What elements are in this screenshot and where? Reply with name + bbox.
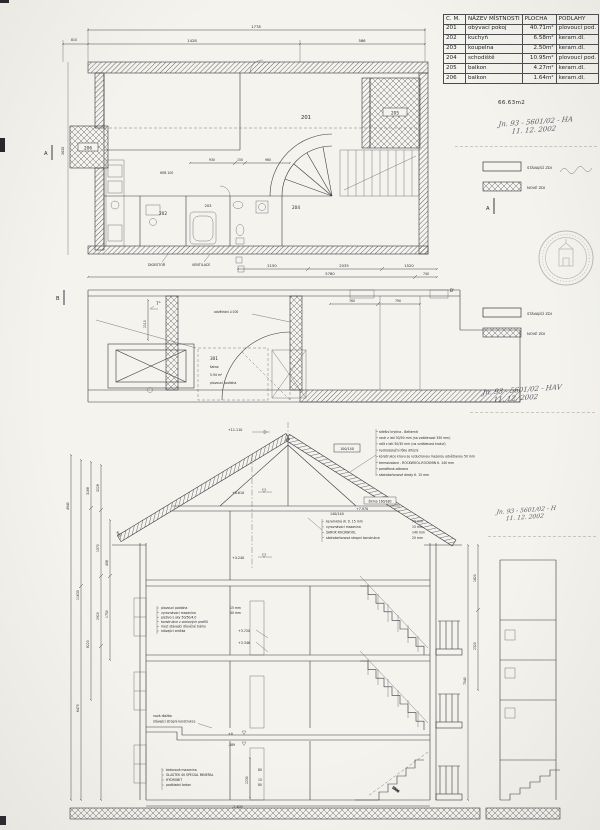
- skylight: [108, 344, 194, 393]
- elev-label: +8.610: [232, 491, 244, 495]
- room-area: 2.50m²: [522, 44, 556, 54]
- table-row: 206 balkon 1.64m² keram.dl.: [444, 74, 599, 84]
- scan-artifact-line: [470, 412, 595, 413]
- dim-label: 458: [105, 560, 109, 566]
- legend-existing-label: STÁVAJÍCÍ ZDI: [527, 165, 552, 170]
- floor-note: stávající omítka: [161, 629, 185, 633]
- dim-label: 1778: [251, 25, 261, 29]
- bathroom-fixtures: [190, 201, 268, 244]
- base-note: GLASTEK 40 SPECIAL MINERAL: [166, 773, 214, 777]
- ground-hatch-right: [486, 808, 560, 819]
- slab-note: nová dlažba: [153, 714, 172, 718]
- roof-note: střešní krytina - Betternit: [379, 430, 419, 434]
- dim-label: 2320: [473, 642, 477, 650]
- dim-label: 2150: [267, 264, 277, 268]
- floor-val: 40 mm: [230, 611, 241, 615]
- legend-new-label: NOVÉ ZDI: [527, 331, 545, 336]
- base-dim: 2230: [245, 776, 249, 784]
- dim-label: 2920: [96, 612, 100, 620]
- base-val: 15: [258, 778, 262, 782]
- section-balconies: [436, 621, 462, 800]
- room-no: 202: [444, 34, 466, 44]
- scan-edge-blob: [0, 816, 6, 825]
- room-name: obývací pokoj: [466, 24, 523, 34]
- room-area: 6.58m²: [522, 34, 556, 44]
- dim-label: 960: [265, 158, 271, 162]
- right-tower: [500, 560, 560, 800]
- mid-notes: keramická dl. tl. 15 mm vyrovnávací maza…: [308, 518, 425, 542]
- room-no: 204: [444, 54, 466, 64]
- legend-existing-label: STÁVAJÍCÍ ZDI: [527, 311, 552, 316]
- mid-val: 140 mm: [412, 531, 425, 535]
- plan1-partitions: [104, 60, 282, 246]
- room-area: 5.94 m²: [210, 373, 223, 377]
- dims-left: 4940 11635 6470 3168 8220 3228 1570 2920…: [66, 455, 112, 800]
- scanned-architectural-drawing: 1778 1428 586 810 1620 206: [0, 0, 600, 830]
- balcony-206: 206: [70, 126, 108, 168]
- floor-plan-upper: 1778 1428 586 810 1620 206: [44, 25, 494, 279]
- roof-right-slope: [286, 434, 456, 545]
- marker-letter: A: [486, 206, 490, 212]
- room-name: koupelna: [466, 44, 523, 54]
- building-section: +11.110 střešní krytina - Betternit rast…: [66, 422, 560, 819]
- room-floor: plovoucí pod.: [556, 24, 599, 34]
- table-row: 203 koupelna 2.50m² keram.dl.: [444, 44, 599, 54]
- room-no: 203: [444, 44, 466, 54]
- roof-note: hydroizolační fólie difúzní: [379, 448, 419, 452]
- dim-label: 1620: [61, 147, 65, 155]
- table-row: 205 balkon 4.27m² keram.dl.: [444, 64, 599, 74]
- room-area: 40.71m²: [522, 24, 556, 34]
- room-area: 10.95m²: [522, 54, 556, 64]
- room-number-203: 203: [204, 204, 212, 208]
- plan2-right-area: [350, 290, 448, 390]
- elev-beam: +7.970: [356, 507, 368, 511]
- floor-plan-attic: 7° 301 šatna 5.94 m² plovoucí podlaha: [56, 288, 520, 402]
- mid-val: 15 mm: [412, 525, 423, 529]
- ground-hatch: [70, 808, 480, 819]
- dim-label: 4940: [66, 502, 70, 510]
- stair-flight-middle: [360, 651, 428, 730]
- base-val: 80: [258, 768, 262, 772]
- room-no: 201: [444, 24, 466, 34]
- roof-note: parotěsná zábrana: [379, 467, 408, 471]
- slope-label: 7°: [156, 301, 161, 306]
- legend-upper: STÁVAJÍCÍ ZDI NOVÉ ZDI: [483, 162, 592, 191]
- room-number: 205: [391, 111, 399, 116]
- room-name: balkon: [466, 74, 523, 84]
- roof-left-slope: [117, 434, 289, 542]
- dim-label: 5780: [325, 272, 335, 276]
- digestor-label: DIGESTOŘ: [148, 262, 166, 267]
- stair-flight-basement: 2500: [355, 752, 428, 800]
- plan1-dimensions-inner: 930 150 960: [190, 158, 290, 165]
- vent-leader: [252, 314, 290, 322]
- plan1-dimensions-bottom: 2150 2035 1520 5780 740: [88, 264, 437, 279]
- skew-label: šikmo 160/180: [368, 500, 391, 504]
- dim-label: 1750: [105, 610, 109, 618]
- room-floor: plovoucí pod.: [556, 54, 599, 64]
- legend-lower: STÁVAJÍCÍ ZDI NOVÉ ZDI: [483, 308, 552, 337]
- floor-note: konstrukce z ocelových profilů: [161, 620, 208, 624]
- total-area: 66.63m2: [498, 100, 525, 106]
- legend-new-label: NOVÉ ZDI: [527, 185, 545, 190]
- vent-label: odvětrání ∅100: [214, 310, 238, 314]
- dim-label: 150: [237, 158, 243, 162]
- floor-note: vyrovnávací mazanina: [161, 611, 196, 615]
- table-row: 201 obývací pokoj 40.71m² plovoucí pod.: [444, 24, 599, 34]
- room-number-202: 202: [159, 211, 167, 216]
- plan2-wall-column-2: [290, 296, 302, 390]
- room-number-201: 201: [301, 115, 311, 121]
- room-name: balkon: [466, 64, 523, 74]
- elev-label: +4.240: [232, 556, 244, 560]
- room-name: šatna: [210, 365, 219, 369]
- mid-note: ŠAROX ROCKWOOL: [326, 530, 356, 535]
- mid-val: 70 mm: [412, 520, 423, 524]
- elev-label: +3.720: [238, 629, 250, 633]
- dim-label: 1570: [96, 544, 100, 552]
- dim-label: 2035: [339, 264, 349, 268]
- dim-label: 6470: [76, 704, 80, 712]
- rafter-size: 100/140: [340, 447, 354, 451]
- scan-edge-blob: [0, 0, 9, 3]
- room-no: 205: [444, 64, 466, 74]
- roof-note: sádrokartonové desky tl. 15 mm: [379, 473, 429, 477]
- base-val: 80: [258, 783, 262, 787]
- room-floor: plovoucí podlaha: [210, 381, 236, 385]
- elev-label: -389: [228, 743, 235, 747]
- scan-edge-blob: [0, 138, 5, 152]
- dim-label: 1520: [404, 264, 414, 268]
- balcony-205: 205: [370, 78, 420, 148]
- marker-letter: A: [44, 151, 48, 157]
- base-note: HYDROBIT: [166, 778, 182, 782]
- stair-dim: 2500: [391, 786, 400, 794]
- dim-label: 8220: [86, 640, 90, 648]
- room-area: 1.64m²: [522, 74, 556, 84]
- floor-val: 15 mm: [230, 606, 241, 610]
- marker-letter: B: [56, 296, 60, 302]
- roof-note: konstrukce krovu se vzduchovou mezerou o…: [379, 455, 475, 459]
- slab-note: stávající stropní konstrukce: [153, 720, 195, 724]
- base-note: betonová mazanina: [166, 768, 197, 772]
- elev-top: +11.110: [228, 428, 242, 432]
- dim-label: 1428: [187, 39, 197, 43]
- roof-note: rastr z latí 30/50 mm (na vzdálenost 350…: [379, 436, 451, 440]
- dim-label: 3168: [86, 487, 90, 495]
- mid-note: keramická dl. tl. 15 mm: [326, 520, 363, 524]
- room-name: kuchyň: [466, 34, 523, 44]
- table-row: 204 schodiště 10.95m² plovoucí pod.: [444, 54, 599, 64]
- elev-label: +3.346: [238, 641, 250, 645]
- beam-size: 140/140: [330, 512, 344, 516]
- table-row: 202 kuchyň 6.58m² keram.dl.: [444, 34, 599, 44]
- straight-stair: [340, 150, 419, 196]
- room-number: 206: [84, 146, 92, 151]
- dim-label: 3228: [96, 484, 100, 492]
- dim-label: 810: [71, 38, 77, 42]
- dim-label: 2110: [143, 320, 147, 328]
- scan-artifact-line: [488, 536, 596, 537]
- dim-label: 930: [209, 158, 215, 162]
- roof-notes: střešní krytina - Betternit rastr z latí…: [334, 429, 475, 477]
- curved-stair: [270, 134, 332, 196]
- scan-artifact-line: [455, 146, 597, 147]
- slab-notes: nová dlažba stávající stropní konstrukce…: [153, 714, 246, 747]
- room-area: 4.27m²: [522, 64, 556, 74]
- plan2-dimensions: 760 790 2110: [143, 299, 420, 340]
- kitchen-fixtures: [106, 160, 160, 246]
- ventilace-label: VENTILACE: [192, 263, 210, 267]
- room-floor: keram.dl.: [556, 64, 599, 74]
- beam-label: HEB 100: [160, 171, 173, 175]
- elev-top-leader: [252, 430, 270, 434]
- elev-label: ±0: [228, 732, 233, 736]
- room-name: schodiště: [466, 54, 523, 64]
- floor-notes: plovoucí podlaha vyrovnávací mazanina pl…: [157, 606, 268, 652]
- col-header-floor: PODLAHY: [556, 15, 599, 25]
- stair-flight-upper: [360, 576, 428, 655]
- roof-note: rošt z latí 50/30 mm (na vzdálenost krok…: [379, 442, 446, 446]
- dim-label: 790: [395, 299, 401, 303]
- dims-right: 1820 2320 7540: [463, 545, 480, 800]
- table-header-row: C. M. NÁZEV MÍSTNOSTI PLOCHA PODLAHY: [444, 15, 599, 25]
- dim-label: 1820: [473, 574, 477, 582]
- mid-note: vyrovnávací mazanina: [326, 525, 361, 529]
- col-header-name: NÁZEV MÍSTNOSTI: [466, 15, 523, 25]
- room-no: 206: [444, 74, 466, 84]
- room-301: 301 šatna 5.94 m² plovoucí podlaha: [198, 348, 268, 400]
- base-note: podkladní beton: [166, 783, 191, 787]
- room-number-301: 301: [210, 356, 218, 361]
- mid-note: sádrokartonová stropní konstrukce: [326, 536, 380, 540]
- floor-note: pletivo s oky 50/50/4.0: [161, 615, 196, 619]
- dim-label: 760: [349, 299, 355, 303]
- col-header-area: PLOCHA: [522, 15, 556, 25]
- marker-letter: B': [450, 288, 454, 293]
- dim-label: 740: [423, 272, 429, 276]
- room-number-204: 204: [292, 205, 300, 210]
- room-schedule-table: C. M. NÁZEV MÍSTNOSTI PLOCHA PODLAHY 201…: [443, 14, 599, 84]
- floor-note: mezi stávající dřevěné trámy: [161, 625, 206, 629]
- room-floor: keram.dl.: [556, 44, 599, 54]
- floor-note: plovoucí podlaha: [161, 606, 187, 610]
- slope-arrow: [150, 306, 158, 309]
- mid-val: 20 mm: [412, 536, 423, 540]
- room-floor: keram.dl.: [556, 74, 599, 84]
- signature-scribble: [560, 166, 592, 174]
- room-floor: keram.dl.: [556, 34, 599, 44]
- dim-label: 11635: [76, 590, 80, 600]
- round-stamp: [539, 231, 593, 285]
- dim-label: 586: [358, 39, 366, 43]
- dim-label: 7540: [463, 677, 467, 685]
- roof-note: termoizolace - ROCKWOOL-ROCKMIN tl. 140 …: [379, 461, 454, 465]
- col-header-cm: C. M.: [444, 15, 466, 25]
